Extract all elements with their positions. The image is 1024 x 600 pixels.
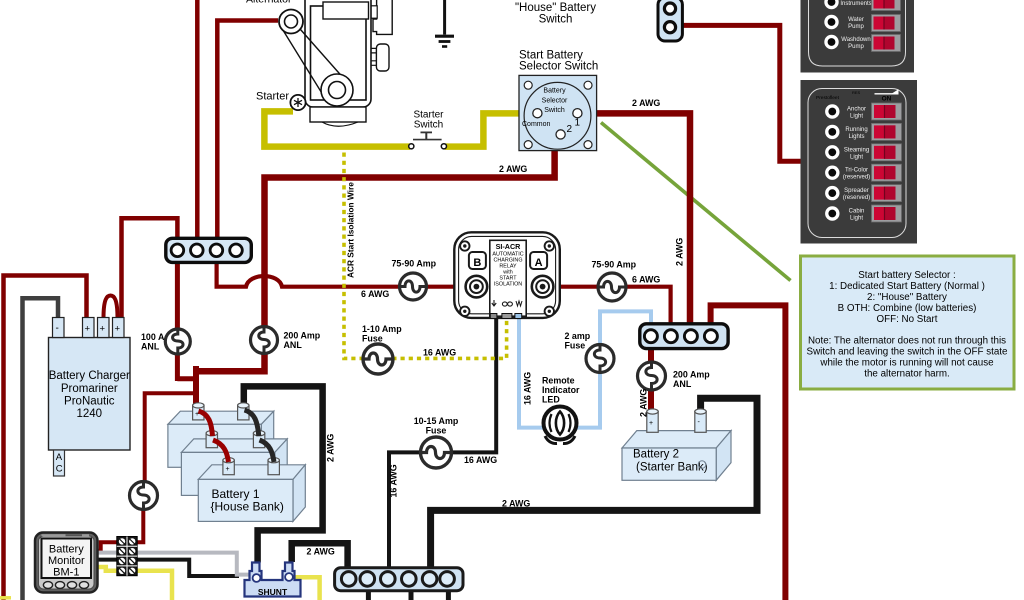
svg-text:while the motor is running wil: while the motor is running will not caus… [819,358,994,369]
svg-text:SI-ACR: SI-ACR [496,242,522,251]
svg-text:Switch: Switch [544,107,565,114]
svg-text:Lights: Lights [848,134,864,140]
svg-text:OFF: No Start: OFF: No Start [877,314,938,325]
svg-text:Common: Common [522,121,551,128]
svg-text:Selector Switch: Selector Switch [519,61,598,73]
svg-text:ON: ON [882,96,892,103]
svg-text:C: C [56,464,63,475]
svg-text:Switch and leaving the switch: Switch and leaving the switch in the OFF… [807,347,1008,358]
svg-text:-: - [56,323,59,334]
svg-text:B: B [473,257,481,269]
svg-text:Prestofleet: Prestofleet [816,95,840,101]
svg-text:Pump: Pump [848,44,864,50]
svg-text:+: + [649,420,653,427]
svg-text:ANL: ANL [673,379,692,389]
svg-text:Remote: Remote [542,376,575,386]
svg-text:Steaming: Steaming [844,147,869,153]
svg-text:16 AWG: 16 AWG [523,372,533,405]
svg-text:Cabin: Cabin [849,209,865,215]
svg-text:the alternator harm.: the alternator harm. [864,369,950,380]
svg-text:Switch: Switch [414,120,443,131]
svg-text:2 AWG: 2 AWG [502,499,530,509]
svg-text:100 A: 100 A [141,332,165,342]
svg-text:Light: Light [850,154,863,160]
svg-text:"House" Battery: "House" Battery [515,2,596,14]
svg-text:Monitor: Monitor [48,555,85,567]
svg-text:Spreader: Spreader [844,188,869,194]
svg-text:200 Amp: 200 Amp [673,370,710,380]
svg-text:Note: The alternator does not: Note: The alternator does not run throug… [808,336,1006,347]
svg-text:Battery: Battery [49,544,84,556]
svg-text:16 AWG: 16 AWG [423,348,456,358]
svg-text:SHUNT: SHUNT [258,587,288,597]
svg-text:Alternator: Alternator [246,0,292,5]
svg-text:BM-1: BM-1 [53,567,79,579]
svg-text:2 AWG: 2 AWG [499,164,527,174]
svg-text:Water: Water [848,17,864,23]
svg-text:+: + [85,324,91,335]
svg-text:Selector: Selector [542,97,568,104]
svg-text:Battery Charger: Battery Charger [49,370,130,382]
svg-text:Battery 2: Battery 2 [633,449,679,461]
svg-text:6 AWG: 6 AWG [632,275,660,285]
svg-text:Light: Light [850,114,863,120]
svg-text:+: + [226,466,230,473]
svg-text:6 AWG: 6 AWG [361,289,389,299]
svg-text:2 AWG: 2 AWG [326,434,336,462]
svg-text:Starter: Starter [256,91,289,103]
svg-text:+: + [115,324,121,335]
svg-text:Anchor: Anchor [847,107,866,113]
svg-text:Start battery Selector :: Start battery Selector : [858,270,955,281]
svg-text:2 AWG: 2 AWG [307,547,335,557]
svg-text:Indicator: Indicator [542,385,580,395]
svg-text:B OTH: Combine (low batteries): B OTH: Combine (low batteries) [838,303,977,314]
svg-text:Pump: Pump [848,24,864,30]
svg-text:Battery: Battery [543,88,566,95]
svg-text:2: 2 [567,124,573,135]
svg-text:2 AWG: 2 AWG [639,389,649,417]
svg-text:75-90 Amp: 75-90 Amp [592,260,637,270]
svg-text:10-15 Amp: 10-15 Amp [414,416,459,426]
svg-text:2: "House" Battery: 2: "House" Battery [867,292,947,303]
svg-text:Washdown: Washdown [841,37,870,43]
svg-text:Fuse: Fuse [426,426,447,436]
svg-text:Light: Light [850,216,863,222]
svg-text:{House Bank): {House Bank) [211,500,284,514]
svg-text:(reserved): (reserved) [843,175,870,181]
svg-text:16 AWG: 16 AWG [389,464,399,497]
svg-text:1: 1 [575,118,581,129]
svg-text:+: + [100,324,106,335]
svg-text:Switch: Switch [539,14,573,26]
svg-text:Promariner: Promariner [61,383,118,395]
svg-text:ProNautic: ProNautic [64,396,115,408]
svg-text:Fuse: Fuse [362,334,383,344]
svg-text:1: Dedicated Start Battery (No: 1: Dedicated Start Battery (Normal ) [829,281,985,292]
svg-text:2 AWG: 2 AWG [675,238,685,266]
svg-text:RES: RES [852,90,861,95]
svg-text:2 AWG: 2 AWG [632,98,660,108]
svg-text:ANL: ANL [141,342,160,352]
svg-text:16 AWG: 16 AWG [464,455,497,465]
svg-text:A: A [535,257,543,269]
svg-text:A: A [56,452,63,463]
svg-text:75-90 Amp: 75-90 Amp [392,259,437,269]
svg-text:ACR Start Isolation Wire: ACR Start Isolation Wire [346,182,356,278]
svg-text:Tri-Color: Tri-Color [845,168,868,174]
svg-text:200 Amp: 200 Amp [284,331,321,341]
svg-text:ISOLATION: ISOLATION [494,282,522,288]
svg-text:Fuse: Fuse [565,341,586,351]
svg-text:Running: Running [845,127,867,133]
svg-text:2 amp: 2 amp [565,331,591,341]
svg-text:Instruments: Instruments [840,1,871,7]
svg-text:ANL: ANL [284,340,303,350]
svg-text:1-10 Amp: 1-10 Amp [362,324,402,334]
svg-text:(Starter Bank): (Starter Bank) [636,462,708,474]
svg-text:1240: 1240 [77,408,103,420]
svg-text:(reserved): (reserved) [843,195,870,201]
svg-text:LED: LED [542,395,560,405]
